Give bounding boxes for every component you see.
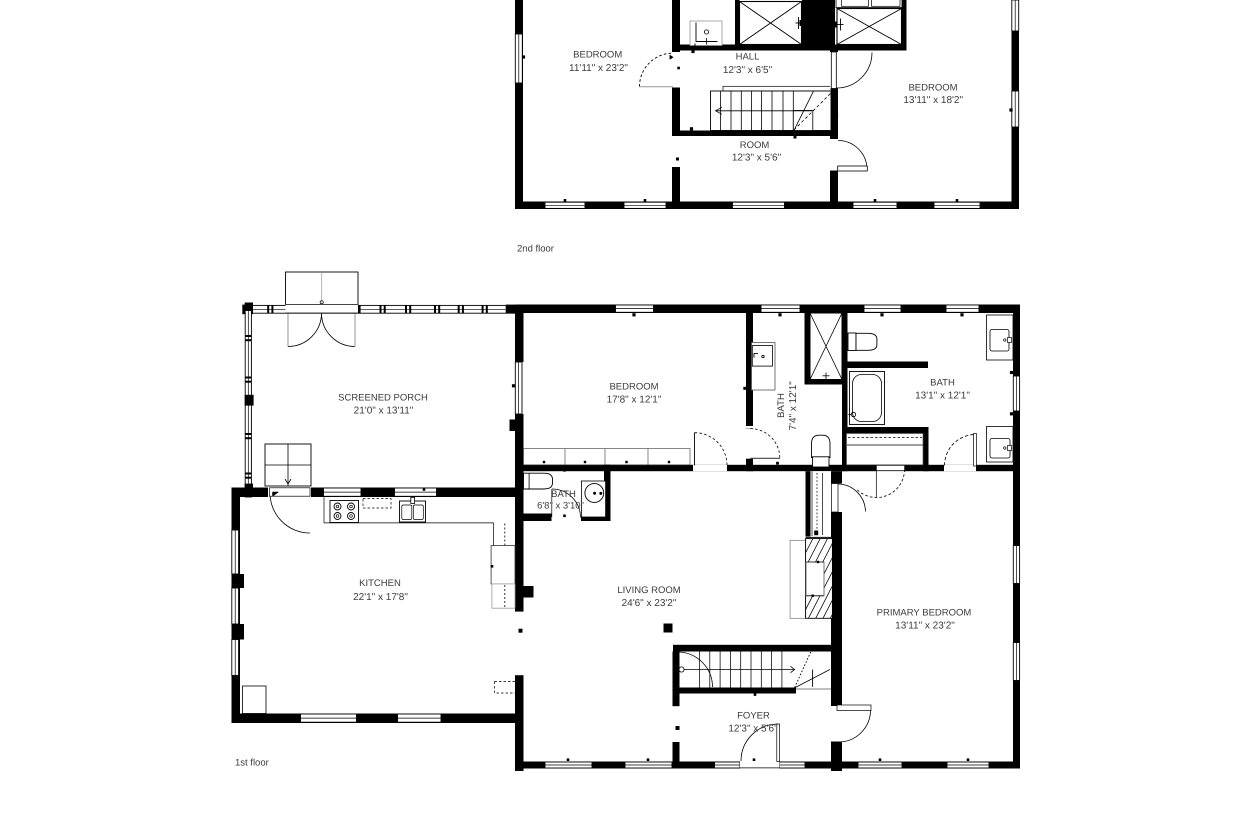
svg-text:SCREENED PORCH: SCREENED PORCH bbox=[338, 393, 428, 404]
svg-text:13'1" x 12'1": 13'1" x 12'1" bbox=[915, 391, 970, 402]
svg-text:LIVING ROOM: LIVING ROOM bbox=[617, 585, 680, 596]
svg-text:BEDROOM: BEDROOM bbox=[908, 82, 957, 93]
svg-text:12'3" x 5'6": 12'3" x 5'6" bbox=[732, 153, 782, 164]
svg-text:ROOM: ROOM bbox=[740, 140, 770, 151]
svg-text:21'0" x 13'11": 21'0" x 13'11" bbox=[354, 406, 414, 417]
svg-text:FOYER: FOYER bbox=[737, 711, 770, 722]
svg-text:HALL: HALL bbox=[736, 52, 760, 63]
svg-text:12'3" x 5'6": 12'3" x 5'6" bbox=[728, 724, 778, 735]
svg-text:24'6" x 23'2": 24'6" x 23'2" bbox=[622, 598, 677, 609]
svg-text:BATH: BATH bbox=[551, 489, 576, 500]
svg-text:BEDROOM: BEDROOM bbox=[573, 50, 622, 61]
svg-text:BATH: BATH bbox=[776, 393, 787, 418]
svg-text:13'11" x 23'2": 13'11" x 23'2" bbox=[895, 621, 955, 632]
svg-text:22'1" x 17'8": 22'1" x 17'8" bbox=[353, 592, 408, 603]
svg-text:12'3" x 6'5": 12'3" x 6'5" bbox=[723, 65, 773, 76]
svg-text:1st floor: 1st floor bbox=[235, 758, 269, 769]
svg-text:7'4" x 12'1": 7'4" x 12'1" bbox=[788, 381, 799, 431]
svg-text:13'11" x 18'2": 13'11" x 18'2" bbox=[903, 95, 963, 106]
svg-text:6'8" x 3'10": 6'8" x 3'10" bbox=[537, 501, 584, 512]
svg-text:BEDROOM: BEDROOM bbox=[609, 382, 658, 393]
svg-text:BATH: BATH bbox=[930, 378, 955, 389]
svg-text:17'8" x 12'1": 17'8" x 12'1" bbox=[607, 395, 662, 406]
svg-text:KITCHEN: KITCHEN bbox=[359, 578, 401, 589]
svg-text:11'11" x 23'2": 11'11" x 23'2" bbox=[569, 63, 628, 74]
svg-text:2nd floor: 2nd floor bbox=[517, 244, 554, 255]
svg-text:PRIMARY BEDROOM: PRIMARY BEDROOM bbox=[877, 608, 972, 619]
